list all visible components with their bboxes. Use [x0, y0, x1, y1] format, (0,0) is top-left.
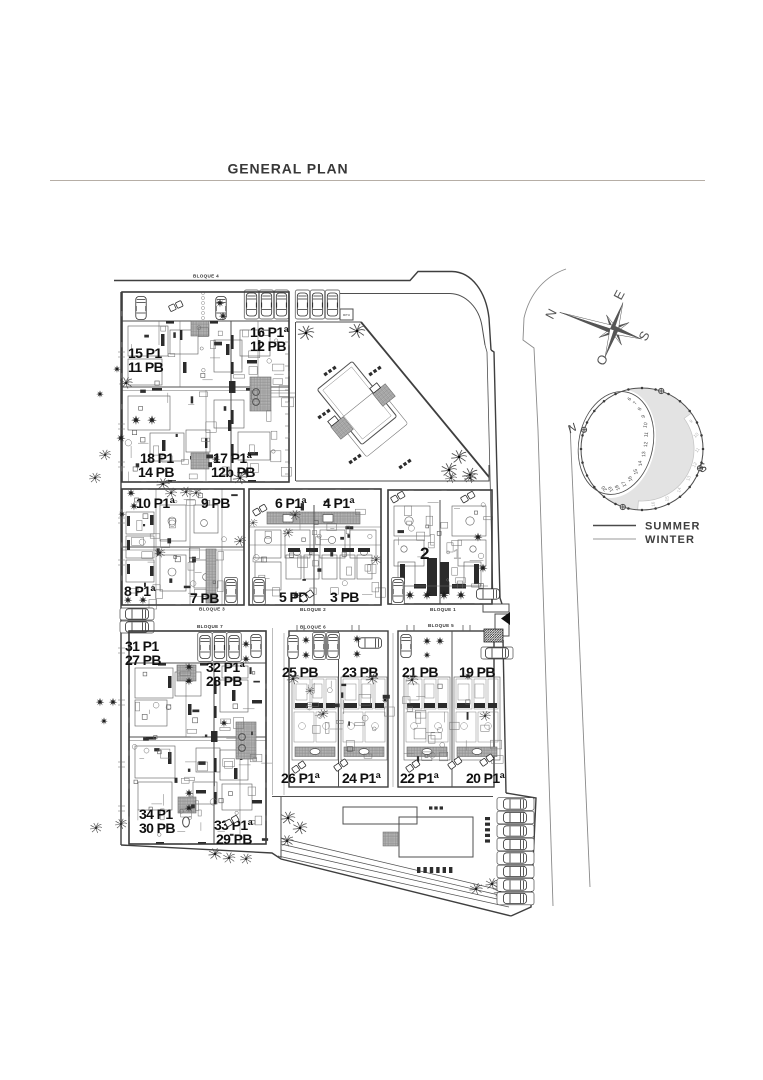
svg-text:19 PB: 19 PB	[459, 664, 495, 680]
svg-text:12 PB: 12 PB	[250, 338, 286, 354]
svg-text:6 P1ª: 6 P1ª	[275, 495, 307, 511]
svg-text:BLOQUE 5: BLOQUE 5	[428, 623, 454, 628]
svg-text:10 P1ª: 10 P1ª	[136, 495, 176, 511]
svg-text:GENERAL PLAN: GENERAL PLAN	[228, 161, 349, 177]
svg-text:1: 1	[453, 546, 461, 563]
svg-text:14 PB: 14 PB	[138, 464, 174, 480]
svg-text:27 PB: 27 PB	[125, 652, 161, 668]
svg-text:28 PB: 28 PB	[206, 673, 242, 689]
svg-text:26 P1ª: 26 P1ª	[281, 770, 321, 786]
svg-text:7 PB: 7 PB	[190, 590, 219, 606]
svg-text:22 P1ª: 22 P1ª	[400, 770, 440, 786]
svg-text:BLOQUE 4: BLOQUE 4	[193, 274, 219, 279]
svg-text:WINTER: WINTER	[645, 534, 695, 546]
svg-text:SUMMER: SUMMER	[645, 521, 701, 533]
svg-text:30 PB: 30 PB	[139, 820, 175, 836]
svg-text:4 P1ª: 4 P1ª	[323, 495, 355, 511]
svg-text:BLOQUE 7: BLOQUE 7	[197, 624, 223, 629]
svg-text:2: 2	[420, 544, 429, 563]
svg-text:15: 15	[664, 496, 669, 502]
svg-text:29 PB: 29 PB	[216, 831, 252, 847]
svg-text:11 PB: 11 PB	[128, 359, 164, 375]
svg-text:24 P1ª: 24 P1ª	[342, 770, 382, 786]
svg-text:RITU: RITU	[343, 313, 350, 317]
svg-text:13: 13	[641, 451, 647, 457]
svg-text:BLOQUE 1: BLOQUE 1	[430, 607, 456, 612]
svg-text:12: 12	[643, 441, 649, 447]
svg-text:25 PB: 25 PB	[282, 664, 318, 680]
svg-text:BLOQUE 2: BLOQUE 2	[300, 607, 326, 612]
svg-text:14: 14	[638, 460, 645, 466]
svg-text:9 PB: 9 PB	[201, 495, 230, 511]
svg-text:BLOQUE 3: BLOQUE 3	[199, 607, 225, 612]
svg-text:3 PB: 3 PB	[330, 589, 359, 605]
svg-text:20 P1ª: 20 P1ª	[466, 770, 506, 786]
svg-text:8 P1ª: 8 P1ª	[124, 583, 156, 599]
svg-text:16: 16	[650, 501, 655, 507]
